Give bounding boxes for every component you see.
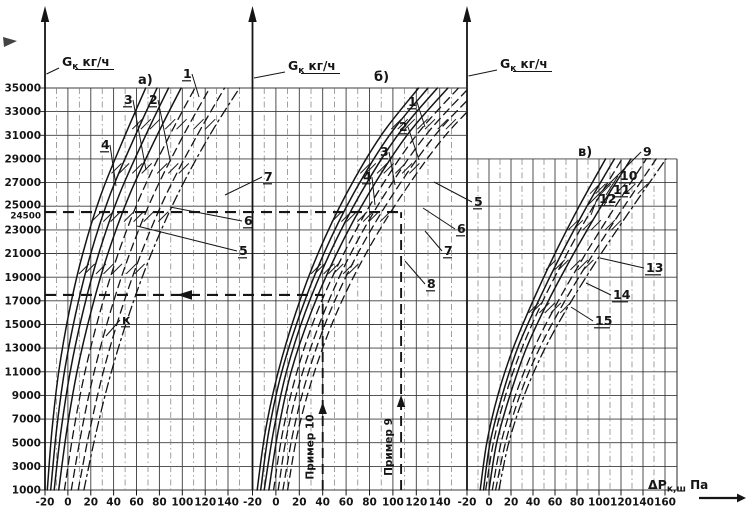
curve-label-б-8: 8 [427, 276, 436, 291]
x-tick-а-120: 120 [194, 497, 216, 509]
x-tick-а-20: 20 [83, 497, 98, 509]
y-tick-5000: 5000 [12, 437, 41, 449]
curve-label-б-5: 5 [474, 194, 483, 209]
y-tick-15000: 15000 [4, 319, 41, 331]
y-tick-21000: 21000 [4, 248, 41, 260]
x-tick-а-40: 40 [106, 497, 121, 509]
x-tick-б-60: 60 [339, 497, 354, 509]
y-tick-11000: 11000 [4, 366, 41, 378]
curve-label-а-5: 5 [239, 243, 248, 258]
curve-label-а-к: к [122, 312, 131, 327]
y-tick-27000: 27000 [4, 177, 41, 189]
curve-label-а-6: 6 [244, 213, 253, 228]
x-tick-а-60: 60 [129, 497, 144, 509]
example-label: Пример 10 [305, 414, 317, 479]
x-tick-а-80: 80 [152, 497, 167, 509]
x-tick-а-140: 140 [217, 497, 239, 509]
x-tick-б-120: 120 [405, 497, 427, 509]
curve-label-в-13: 13 [646, 260, 663, 275]
y-tick-23000: 23000 [4, 225, 41, 237]
x-tick-а-0: 0 [64, 497, 71, 509]
x-tick-в-120: 120 [610, 497, 632, 509]
panel-letter-в: в) [578, 145, 592, 160]
curve-label-а-4: 4 [101, 137, 110, 152]
curve-label-б-2: 2 [399, 119, 408, 134]
x-tick-в-80: 80 [570, 497, 585, 509]
x-tick-а--20: -20 [36, 497, 55, 509]
y-tick-3000: 3000 [12, 461, 41, 473]
x-tick-в-140: 140 [632, 497, 654, 509]
x-tick-б-140: 140 [429, 497, 451, 509]
y-tick-17000: 17000 [4, 295, 41, 307]
x-tick-в-0: 0 [485, 497, 492, 509]
curve-label-в-12: 12 [599, 191, 616, 206]
x-tick-в--20: -20 [458, 497, 477, 509]
x-tick-б-80: 80 [362, 497, 377, 509]
y-tick-19000: 19000 [4, 272, 41, 284]
curve-label-б-3: 3 [380, 144, 389, 159]
x-tick-б--20: -20 [243, 497, 262, 509]
y-tick-35000: 35000 [4, 83, 41, 95]
x-tick-б-40: 40 [315, 497, 330, 509]
nomogram-svg: Пример 10Пример 935000330003100029000270… [0, 0, 746, 530]
y-tick-9000: 9000 [12, 390, 41, 402]
curve-label-а-7: 7 [264, 169, 273, 184]
scanned-nomogram-page: Пример 10Пример 935000330003100029000270… [0, 0, 746, 530]
x-tick-в-60: 60 [548, 497, 563, 509]
x-tick-в-40: 40 [526, 497, 541, 509]
curve-label-б-4: 4 [363, 169, 372, 184]
x-tick-в-20: 20 [504, 497, 519, 509]
y-tick-31000: 31000 [4, 130, 41, 142]
curve-label-в-14: 14 [613, 287, 631, 302]
curve-label-а-3: 3 [124, 92, 133, 107]
y-tick-24500: 24500 [10, 212, 41, 222]
y-tick-1000: 1000 [12, 485, 41, 497]
panel-letter-б: б) [374, 70, 389, 85]
x-tick-б-20: 20 [292, 497, 307, 509]
example-label: Пример 9 [383, 418, 395, 476]
curve-label-в-10: 10 [620, 168, 638, 183]
x-tick-б-100: 100 [382, 497, 404, 509]
x-tick-а-100: 100 [171, 497, 193, 509]
curve-label-а-2: 2 [149, 92, 158, 107]
y-tick-29000: 29000 [4, 154, 41, 166]
curve-label-в-9: 9 [643, 144, 652, 159]
curve-label-в-15: 15 [595, 313, 612, 328]
panel-letter-а: а) [138, 73, 153, 88]
y-tick-33000: 33000 [4, 106, 41, 118]
x-tick-в-160: 160 [654, 497, 676, 509]
x-tick-б-0: 0 [272, 497, 279, 509]
curve-label-а-1: 1 [183, 66, 192, 81]
curve-label-б-6: 6 [457, 221, 466, 236]
y-tick-7000: 7000 [12, 414, 41, 426]
x-tick-в-100: 100 [588, 497, 610, 509]
curve-label-б-1: 1 [408, 94, 417, 109]
y-tick-13000: 13000 [4, 343, 41, 355]
curve-label-б-7: 7 [444, 243, 453, 258]
y-tick-25000: 25000 [4, 199, 41, 211]
